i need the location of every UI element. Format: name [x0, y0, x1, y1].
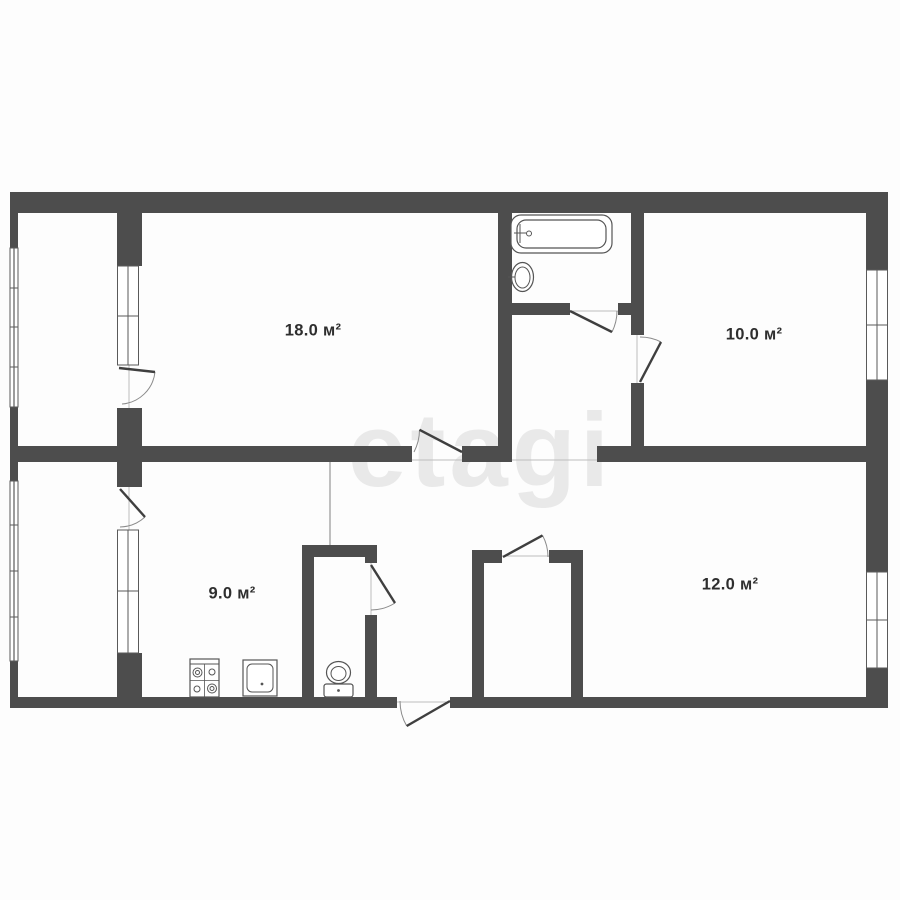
stove-icon — [190, 659, 219, 697]
window-second-room — [867, 572, 888, 668]
wall-segment — [302, 545, 314, 697]
room-label-bedroom: 10.0 м² — [726, 326, 783, 345]
wall-segment — [631, 383, 644, 462]
wall-segment — [117, 213, 142, 266]
door-toilet — [371, 565, 395, 610]
wall-segment — [498, 213, 512, 462]
wall-segment — [365, 545, 377, 563]
bathtub-icon — [511, 215, 612, 253]
wall-segment — [498, 303, 570, 315]
wall-segment — [472, 550, 502, 563]
wall-segment — [450, 697, 888, 708]
wall-segment — [10, 661, 18, 708]
wall-segment — [365, 615, 377, 697]
toilet-icon — [324, 662, 353, 698]
kitchen-sink-icon — [243, 660, 277, 696]
wall-segment — [117, 653, 142, 697]
wall-segment — [631, 213, 644, 335]
room-label-kitchen: 9.0 м² — [208, 585, 255, 604]
wall-segment — [866, 192, 888, 270]
walls — [10, 192, 888, 708]
wall-segment — [866, 380, 888, 572]
floorplan-canvas: etagi — [0, 0, 900, 900]
wall-segment — [571, 550, 583, 697]
wall-segment — [10, 192, 18, 248]
wall-segment — [10, 697, 397, 708]
door-balcony-bottom — [120, 489, 145, 527]
door-bedroom — [640, 337, 661, 382]
floorplan-svg — [0, 0, 900, 900]
wall-segment — [10, 407, 18, 481]
room-label-second-room: 12.0 м² — [702, 576, 759, 595]
door-thresholds — [129, 311, 637, 702]
wall-segment — [10, 192, 888, 213]
window-kitchen-balcony — [118, 530, 139, 653]
door-bathroom — [570, 311, 617, 332]
wall-segment — [10, 446, 412, 462]
wall-segment — [472, 550, 484, 697]
door-closet — [503, 535, 548, 557]
window-balcony-bottom-outer — [10, 481, 18, 661]
wall-segment — [866, 668, 888, 708]
door-balcony-top — [119, 368, 155, 404]
wall-segment — [618, 303, 631, 315]
door-entrance — [400, 701, 450, 726]
room-label-living-room: 18.0 м² — [285, 322, 342, 341]
window-bedroom — [867, 270, 888, 380]
window-living-room-balcony — [118, 266, 139, 365]
window-balcony-top-outer — [10, 248, 18, 407]
door-living-room — [414, 430, 462, 452]
